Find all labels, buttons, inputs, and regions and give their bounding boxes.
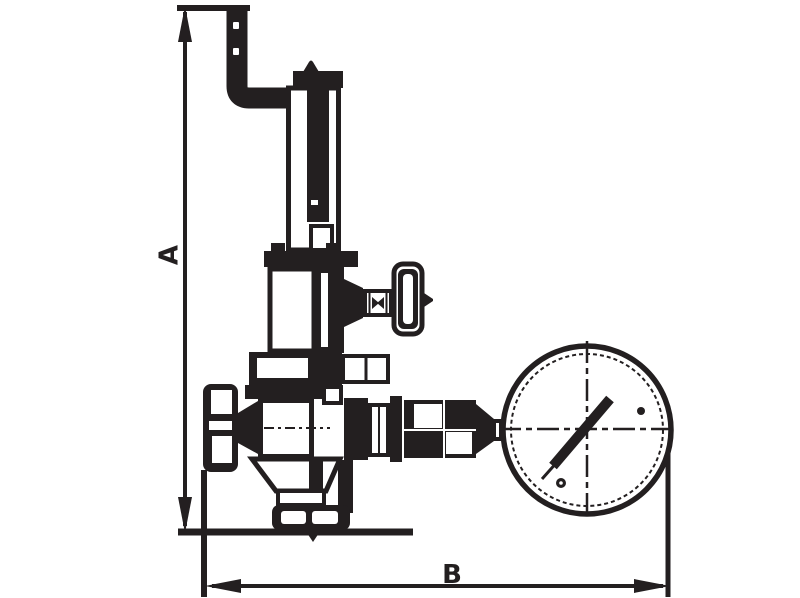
arrow-left-icon bbox=[205, 579, 241, 593]
gauge-pivot-hole bbox=[559, 481, 563, 485]
test-valve-knob-slot bbox=[403, 274, 413, 324]
technical-drawing-canvas: A B bbox=[0, 0, 800, 598]
relief-pipe bbox=[233, 8, 300, 98]
arrow-up-icon bbox=[178, 6, 192, 42]
gauge-screw-dot bbox=[637, 407, 645, 415]
union-nut-facet bbox=[414, 404, 442, 428]
outlet-cone bbox=[252, 459, 340, 491]
inlet-knob-slot-top bbox=[211, 390, 232, 414]
dimension-a-label: A bbox=[155, 245, 185, 265]
spring-housing bbox=[270, 267, 344, 353]
valve-technical-drawing: A B bbox=[0, 0, 800, 598]
bonnet-cap bbox=[293, 71, 343, 88]
body-right-mass bbox=[344, 398, 368, 460]
outlet-cone-bar bbox=[309, 459, 323, 491]
connection-cone bbox=[476, 404, 494, 454]
pipe-highlight-mark bbox=[233, 22, 239, 29]
spring-bonnet-tube bbox=[264, 88, 358, 267]
outlet-mid-block bbox=[278, 491, 324, 505]
body-side-block bbox=[324, 387, 341, 403]
relief-pipe-path bbox=[237, 8, 300, 98]
housing-column-slot bbox=[321, 273, 328, 347]
spring-chamber bbox=[270, 269, 314, 351]
pressure-gauge bbox=[499, 341, 675, 519]
bonnet-lug-right bbox=[326, 243, 340, 251]
stem-highlight-mark bbox=[311, 200, 318, 205]
base-flange-slot bbox=[312, 511, 338, 524]
base-flange-slot bbox=[281, 511, 306, 524]
gauge-connection bbox=[390, 396, 507, 462]
arrow-down-icon bbox=[178, 497, 192, 533]
housing-right-column bbox=[316, 267, 344, 353]
pipe-highlight-mark bbox=[233, 48, 239, 55]
adjusting-screw-cap bbox=[293, 61, 343, 89]
bonnet-lug-left bbox=[271, 243, 285, 251]
union-nut-facet bbox=[446, 432, 472, 454]
inlet-knob-slot-bottom bbox=[212, 436, 232, 463]
outlet-tip bbox=[305, 530, 321, 542]
arrow-right-icon bbox=[634, 579, 670, 593]
body-flange-band bbox=[245, 385, 322, 399]
test-valve-branch bbox=[344, 264, 433, 334]
inlet-knob-stem-cone bbox=[238, 401, 258, 454]
union-flange bbox=[390, 396, 402, 462]
dimension-b-label: B bbox=[442, 560, 462, 590]
branch-cone bbox=[344, 279, 363, 327]
bonnet-flange bbox=[264, 251, 358, 267]
body-neck-right bbox=[316, 352, 342, 385]
adjusting-screw-tip bbox=[303, 61, 319, 73]
test-valve-knob-tip bbox=[424, 293, 433, 307]
body-neck-slot bbox=[257, 358, 308, 378]
inlet-knob-band bbox=[209, 421, 232, 430]
